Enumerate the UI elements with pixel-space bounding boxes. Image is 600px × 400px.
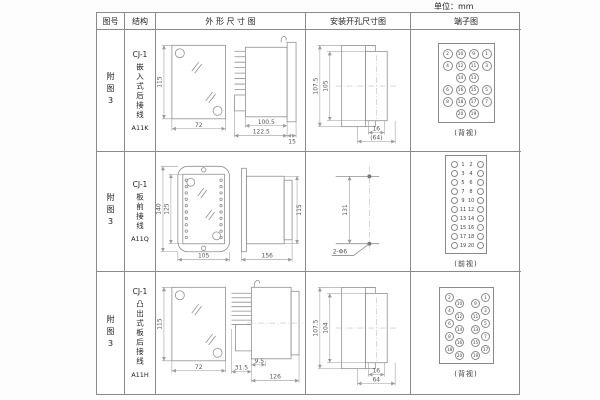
dim-gap: 9.5: [255, 358, 265, 365]
terminal-circle: [477, 179, 484, 186]
row2-front-view: 140 125 105: [156, 166, 230, 261]
row2-outline-drawing: 140 125 105 156 115: [156, 156, 305, 268]
row1-outline-cell: 115 72 100.5 122.5 15: [156, 30, 306, 152]
terminal-circle: [477, 197, 484, 204]
header-structure: 结构: [125, 13, 156, 30]
terminal-circle: 5: [481, 319, 490, 328]
row2-side-view: 156 115: [241, 168, 303, 261]
header-terminal: 端子图: [411, 13, 521, 30]
row1-type-label: 嵌入式后接线: [135, 63, 146, 120]
terminal-number: 20: [467, 243, 475, 249]
terminal-number: 2: [467, 162, 475, 168]
terminal-circle: 10: [456, 49, 466, 59]
terminal-circle: 19: [471, 351, 480, 360]
terminal-circle: 20: [455, 351, 464, 360]
row3-type-label: 凸出式板后接线: [135, 300, 146, 367]
terminal-number: 15: [459, 225, 467, 231]
dim-total-l: 122.5: [253, 128, 270, 135]
terminal-circle: 3: [481, 306, 490, 315]
terminal-circle: 7: [481, 332, 490, 341]
row3-model-label: CJ-1: [133, 287, 148, 296]
row1-figure-cell: 附图3: [97, 30, 125, 152]
terminal-circle: [451, 161, 458, 168]
terminal-circle: 15: [471, 338, 480, 347]
dim-hole-dist: 131: [342, 204, 349, 216]
terminal-number: 11: [459, 207, 467, 213]
terminal-circle: [451, 242, 458, 249]
dim-inner-h: 105: [322, 80, 329, 92]
header-figure: 图号: [97, 13, 125, 30]
dim-front-h: 115: [156, 76, 163, 88]
dim-hole-label: 2-Φ6: [333, 248, 348, 255]
terminal-circle: [451, 215, 458, 222]
terminal-circle: 2: [445, 293, 454, 302]
terminal-number: 18: [467, 234, 475, 240]
dim-front-w: 72: [195, 364, 203, 371]
row2-code-label: A11Q: [131, 235, 149, 243]
terminal-circle: [477, 161, 484, 168]
terminal-number: 14: [467, 216, 475, 222]
row1-install-cell: 107.5 105 16 (64): [306, 30, 411, 152]
terminal-number: 4: [467, 171, 475, 177]
dim-inner-h: 104: [322, 322, 329, 334]
terminal-number: 6: [467, 180, 475, 186]
terminal-circle: 9: [469, 49, 479, 59]
terminal-number: 1: [459, 162, 467, 168]
dim-front-w: 72: [195, 121, 203, 128]
terminal-number: 16: [467, 225, 475, 231]
dim-pin-l: 31.5: [235, 365, 248, 372]
terminal-circle: [451, 233, 458, 240]
terminal-circle: 18: [456, 97, 466, 107]
terminal-number: 12: [467, 207, 475, 213]
row1-terminal-diagram: 2109141211314136161558181772019: [438, 43, 495, 123]
row3-structure-cell: CJ-1 凸出式板后接线 A11H: [125, 272, 156, 394]
row2-terminal-view-label: (前视): [454, 259, 477, 269]
terminal-circle: 16: [455, 338, 464, 347]
row2-install-cell: 131 2-Φ6: [306, 152, 411, 272]
terminal-number: 3: [459, 171, 467, 177]
terminal-circle: 7: [482, 97, 492, 107]
row2-terminal-diagram: 1234567891011121314151617181920: [445, 155, 487, 254]
terminal-circle: [477, 170, 484, 177]
row3-outline-drawing: 115 72 9.5 31.5: [156, 273, 305, 393]
row3-install-drawing: 107.5 104 16 64: [306, 273, 410, 393]
terminal-circle: 10: [455, 299, 464, 308]
terminal-circle: 20: [456, 109, 466, 119]
row1-structure-cell: CJ-1 嵌入式后接线 A11K: [125, 30, 156, 152]
row2-install-drawing: 131 2-Φ6: [306, 152, 410, 272]
header-install: 安装开孔尺寸图: [306, 13, 411, 30]
row3-figure-cell: 附图3: [97, 272, 125, 394]
terminal-circle: 1: [481, 293, 490, 302]
dim-total-w: 64: [373, 377, 381, 384]
terminal-number: 7: [459, 189, 467, 195]
row1-side-view: 100.5 122.5 15: [234, 36, 296, 145]
row3-install-cell: 107.5 104 16 64: [306, 272, 411, 394]
row2-figure-cell: 附图3: [97, 152, 125, 272]
terminal-circle: 1: [482, 49, 492, 59]
row1-terminal-view-label: (背视): [454, 128, 477, 138]
terminal-circle: [451, 224, 458, 231]
terminal-circle: [451, 188, 458, 195]
row2-type-label: 板前接线: [135, 193, 146, 231]
terminal-number: 19: [459, 243, 467, 249]
row1-outline-drawing: 115 72 100.5 122.5 15: [156, 31, 305, 151]
row1-code-label: A11K: [132, 124, 149, 132]
terminal-circle: [477, 206, 484, 213]
row3-terminal-cell: 2104126148161820911131351571917 (背视): [411, 272, 521, 394]
terminal-circle: [477, 242, 484, 249]
row3-side-view: 9.5 31.5 126: [231, 280, 303, 382]
terminal-circle: 8: [445, 332, 454, 341]
dim-outer-h: 107.5: [312, 77, 319, 94]
row2-figure-label: 附图3: [105, 193, 116, 230]
terminal-circle: 16: [456, 85, 466, 95]
terminal-circle: 8: [443, 97, 453, 107]
terminal-circle: 18: [445, 345, 454, 354]
dim-inner-h: 125: [163, 203, 170, 215]
dim-body-l: 126: [270, 374, 282, 381]
row3-figure-label: 附图3: [105, 315, 116, 352]
terminal-circle: [477, 188, 484, 195]
terminal-circle: [477, 233, 484, 240]
row3-code-label: A11H: [131, 371, 149, 379]
terminal-circle: [477, 215, 484, 222]
row3-front-view: 115 72: [156, 287, 225, 372]
terminal-number: 9: [459, 198, 467, 204]
terminal-circle: 17: [469, 97, 479, 107]
terminal-circle: 14: [456, 73, 466, 83]
row3-outline-cell: 115 72 9.5 31.5: [156, 272, 306, 394]
terminal-circle: [477, 224, 484, 231]
terminal-number: 8: [467, 189, 475, 195]
dim-outer-h: 107.5: [312, 319, 319, 336]
terminal-circle: 3: [482, 61, 492, 71]
terminal-number: 13: [459, 216, 467, 222]
terminal-circle: 14: [455, 325, 464, 334]
dim-front-h: 115: [156, 318, 163, 330]
terminal-circle: 13: [469, 73, 479, 83]
dim-front-w: 105: [198, 252, 210, 259]
terminal-circle: 9: [471, 299, 480, 308]
terminal-circle: 17: [481, 345, 490, 354]
dim-slot-w: 16: [373, 368, 381, 375]
row1-model-label: CJ-1: [133, 50, 148, 59]
row2-outline-cell: 140 125 105 156 115: [156, 152, 306, 272]
row1-install-drawing: 107.5 105 16 (64): [306, 31, 410, 151]
spec-table: 图号 结构 外 形 尺 寸 图 安装开孔尺寸图 端子图 附图3 CJ-1 嵌入式…: [96, 12, 520, 395]
row2-terminal-cell: 1234567891011121314151617181920 (前视): [411, 152, 521, 272]
terminal-circle: 13: [471, 325, 480, 334]
terminal-circle: 6: [445, 319, 454, 328]
terminal-circle: 12: [456, 61, 466, 71]
header-outline: 外 形 尺 寸 图: [156, 13, 306, 30]
row1-figure-label: 附图3: [105, 72, 116, 109]
terminal-circle: 15: [469, 85, 479, 95]
row1-terminal-cell: 2109141211314136161558181772019 (背视): [411, 30, 521, 152]
terminal-number: 5: [459, 180, 467, 186]
document-page: 单位：mm 图号 结构 外 形 尺 寸 图 安装开孔尺寸图 端子图 附图3 CJ…: [0, 0, 600, 400]
terminal-circle: 6: [443, 85, 453, 95]
dim-outer-h: 140: [156, 203, 162, 215]
row3-terminal-diagram: 2104126148161820911131351571917: [439, 287, 494, 364]
terminal-circle: 2: [443, 49, 453, 59]
row3-terminal-view-label: (背视): [454, 369, 477, 379]
dim-body-l: 100.5: [258, 118, 275, 125]
row2-model-label: CJ-1: [133, 180, 148, 189]
terminal-circle: 11: [471, 312, 480, 321]
dim-slot-w: 16: [373, 125, 381, 132]
terminal-circle: 11: [469, 61, 479, 71]
dim-total-w: (64): [370, 134, 382, 141]
terminal-circle: [451, 170, 458, 177]
terminal-circle: [451, 206, 458, 213]
unit-label: 单位：mm: [434, 1, 474, 12]
terminal-circle: [451, 179, 458, 186]
dim-flange-w: 15: [288, 138, 296, 145]
dim-side-h: 115: [296, 204, 303, 216]
terminal-number: 10: [467, 198, 475, 204]
terminal-circle: [451, 197, 458, 204]
terminal-circle: 19: [469, 109, 479, 119]
row2-structure-cell: CJ-1 板前接线 A11Q: [125, 152, 156, 272]
terminal-circle: 4: [445, 306, 454, 315]
row1-front-view: 115 72: [156, 45, 225, 130]
terminal-number: 17: [459, 234, 467, 240]
terminal-circle: 12: [455, 312, 464, 321]
terminal-circle: 4: [443, 61, 453, 71]
dim-side-l: 156: [262, 252, 274, 259]
terminal-circle: 5: [482, 85, 492, 95]
